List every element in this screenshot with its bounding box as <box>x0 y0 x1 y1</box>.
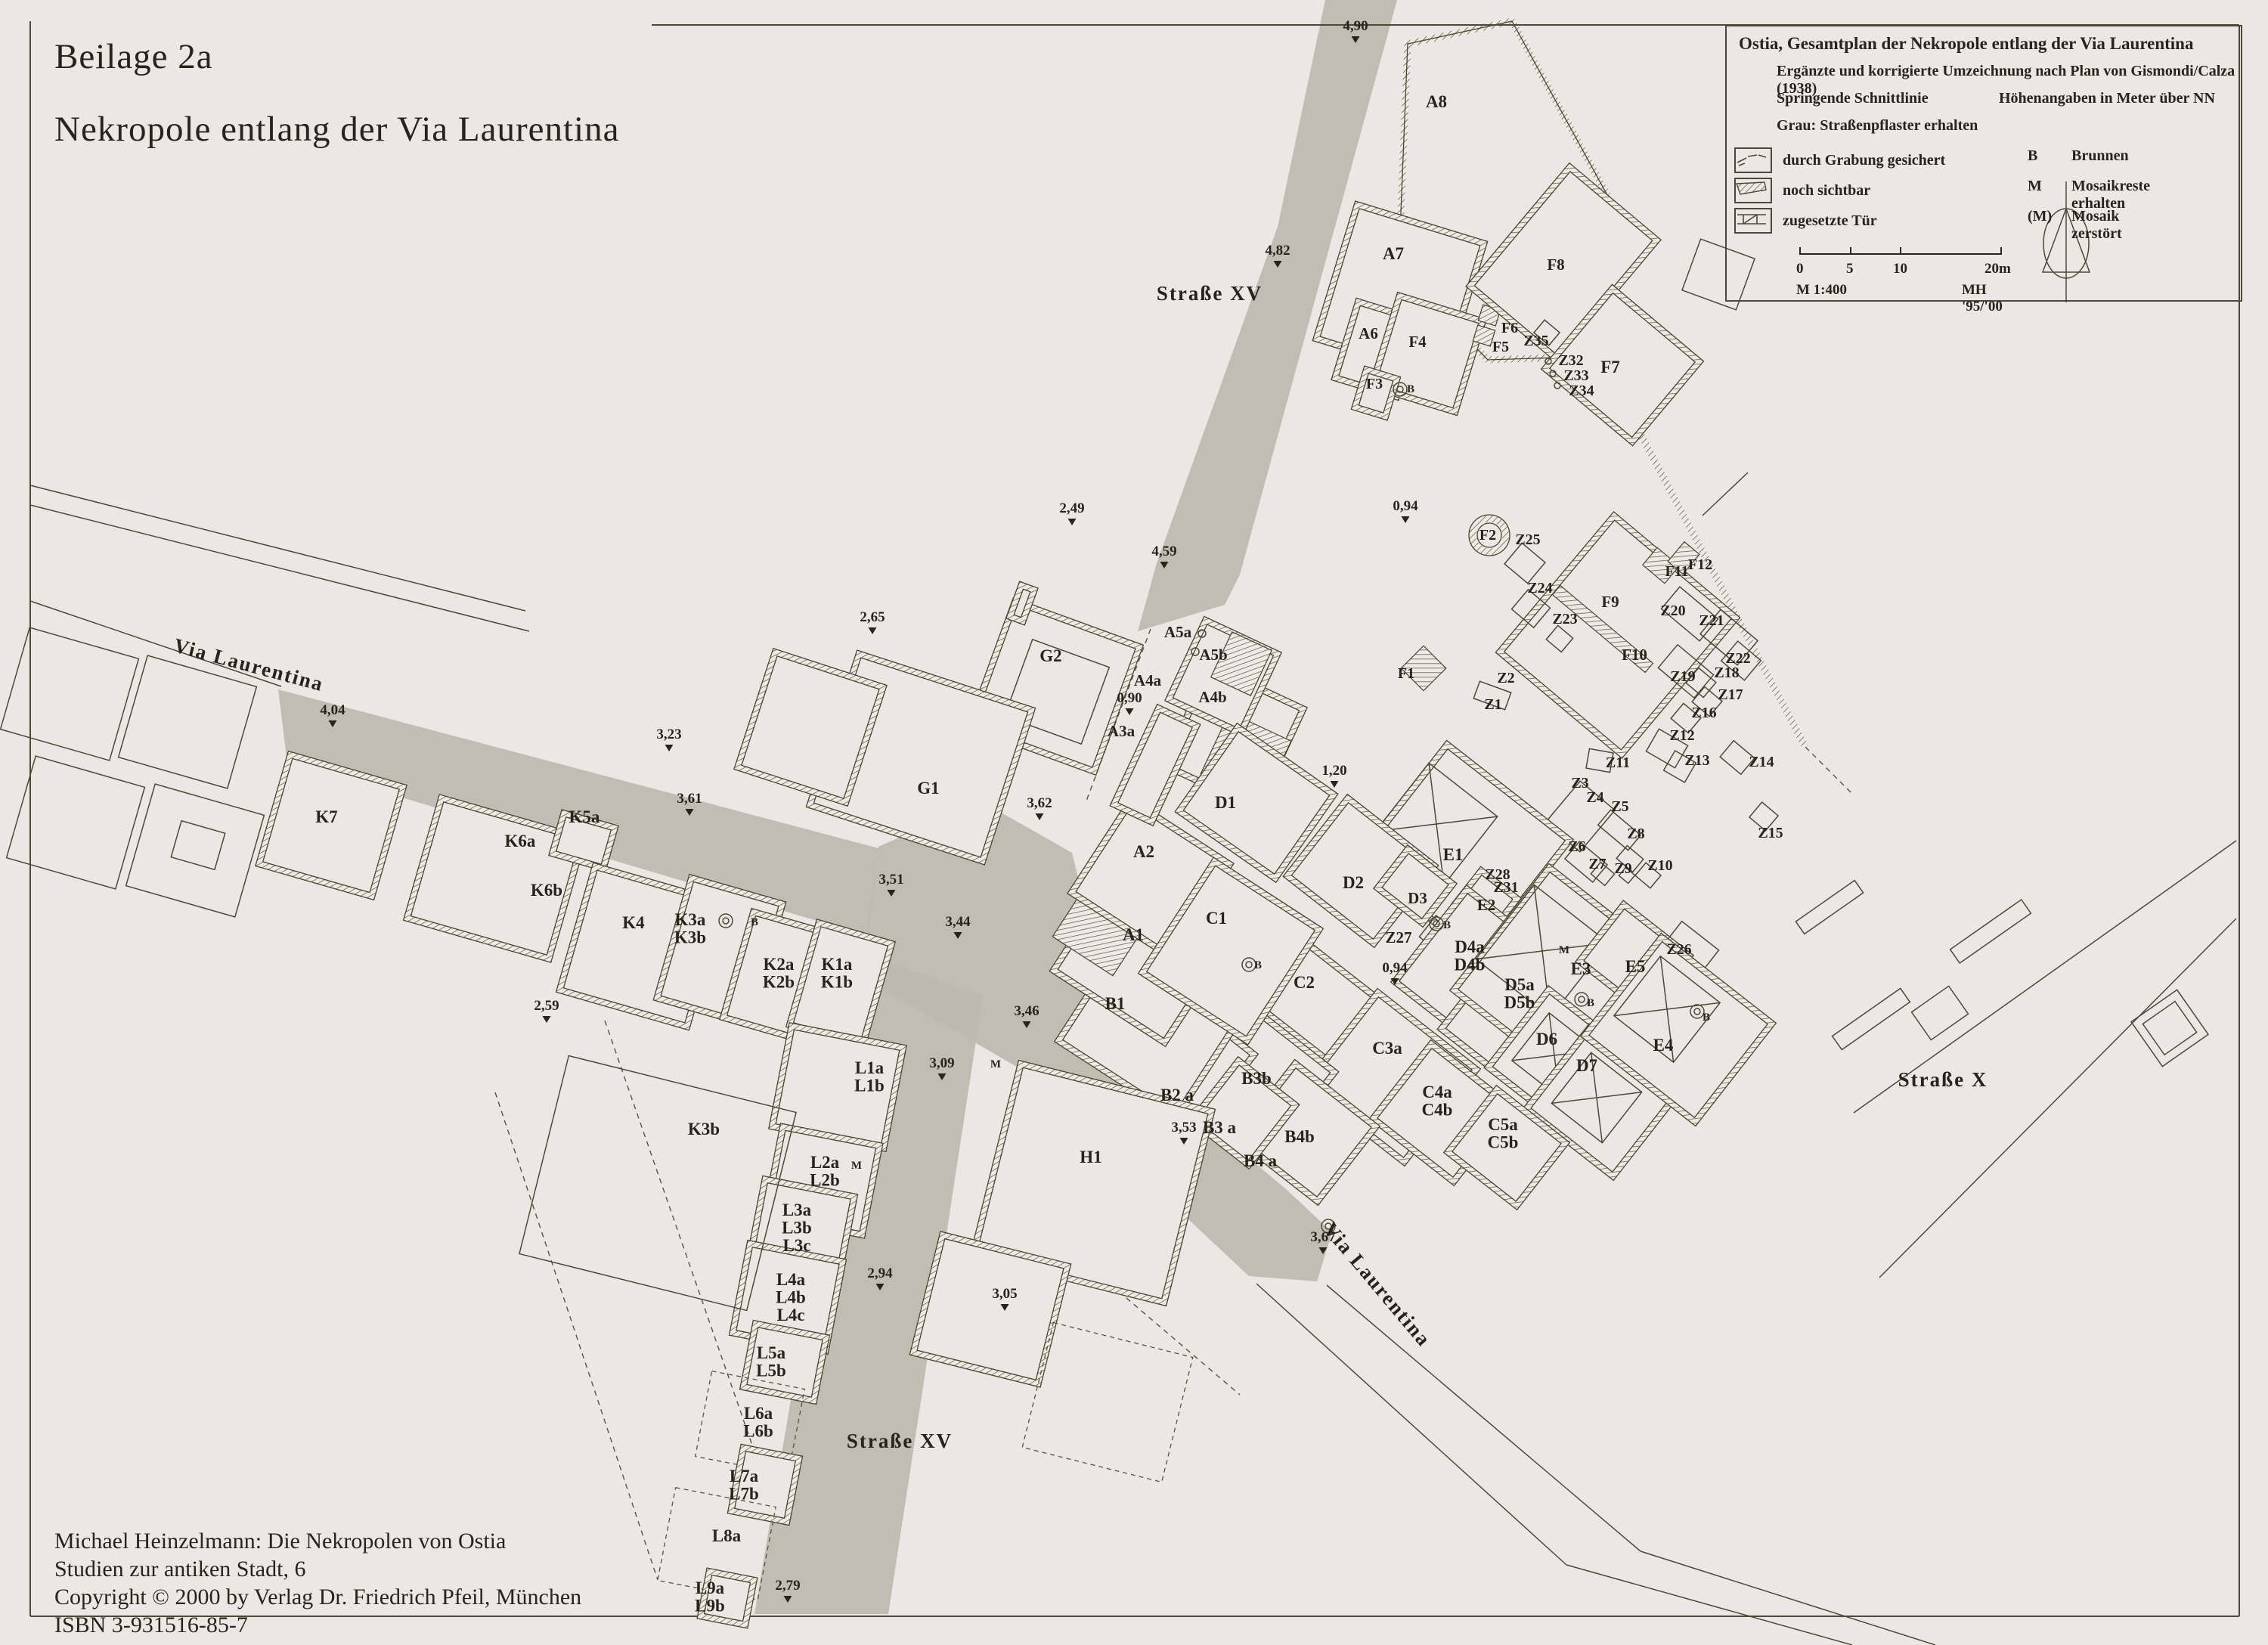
imprint-line: Copyright © 2000 by Verlag Dr. Friedrich… <box>54 1583 581 1611</box>
building-label: F3 <box>1366 376 1383 392</box>
building-label: Z34 <box>1569 383 1594 399</box>
building-label: F5 <box>1492 339 1509 355</box>
building-label: G2 <box>1039 646 1061 665</box>
building-label: D3 <box>1408 889 1427 907</box>
scale-tick <box>1900 247 1901 255</box>
road-line <box>30 485 525 611</box>
building-label: E5 <box>1625 957 1646 976</box>
building-label: B1 <box>1105 994 1126 1013</box>
building-label: Z31 <box>1493 879 1518 896</box>
elevation-value: 4,82 <box>1265 243 1290 259</box>
building-label: Z4 <box>1586 789 1603 806</box>
elevation-value: 2,94 <box>867 1266 893 1281</box>
building-label: D6 <box>1536 1030 1557 1049</box>
building-label: F7 <box>1600 358 1620 376</box>
building-label: Z6 <box>1568 838 1585 855</box>
elevation-value: 4,04 <box>320 702 345 718</box>
building <box>1022 1323 1192 1482</box>
elevation-value: 2,79 <box>775 1578 800 1594</box>
abbrev-key: M <box>2028 178 2067 195</box>
building-label: Z20 <box>1660 603 1685 619</box>
building-label: B <box>1443 919 1451 931</box>
abbrev-value: Mosaik zerstört <box>2071 208 2122 243</box>
building-label: K3aK3b <box>674 910 706 946</box>
building-label: Z5 <box>1611 798 1628 815</box>
building-label: C2 <box>1294 973 1315 992</box>
scale-tick <box>1799 247 1801 255</box>
abbrev-key: (M) <box>2028 208 2067 225</box>
building-label: B <box>1254 959 1262 971</box>
building-label: Z32 <box>1558 352 1583 369</box>
blocked-door-icon <box>1734 208 1772 234</box>
building-label: B <box>751 916 758 928</box>
building-label: A7 <box>1383 244 1404 263</box>
building-label: Z12 <box>1669 727 1694 744</box>
imprint-block: Michael Heinzelmann: Die Nekropolen von … <box>54 1527 581 1639</box>
building-label: Z17 <box>1718 686 1743 703</box>
legend-item-label: durch Grabung gesichert <box>1783 152 1945 169</box>
building-label: D2 <box>1343 873 1364 892</box>
building-label: F11 <box>1665 563 1688 580</box>
building-label: B3 a <box>1203 1118 1237 1137</box>
building-label: A6 <box>1359 324 1378 342</box>
building-label: Z24 <box>1527 580 1552 596</box>
building-label: A1 <box>1123 925 1144 944</box>
building-label: A5b <box>1199 646 1227 664</box>
building <box>1912 986 1969 1039</box>
building-label: B <box>1407 383 1414 395</box>
abbrev-key: B <box>2028 147 2067 165</box>
elevation-value: 4,90 <box>1343 18 1368 34</box>
elevation-value: 3,09 <box>929 1055 954 1071</box>
building-label: Z14 <box>1749 754 1774 770</box>
building-label: K6b <box>531 881 562 900</box>
scale-label: 0 <box>1796 261 1804 277</box>
building-label: H1 <box>1080 1148 1101 1166</box>
building-label: M <box>851 1160 862 1172</box>
legend-item-label: noch sichtbar <box>1783 182 1870 200</box>
elevation-value: 0,94 <box>1382 960 1408 976</box>
building-label: A4a <box>1134 671 1162 689</box>
building-label: A3a <box>1108 722 1136 740</box>
elevation-value: 3,53 <box>1171 1120 1196 1135</box>
building-label: E2 <box>1477 896 1496 914</box>
building-label: F4 <box>1408 333 1427 351</box>
scale-tick <box>1850 247 1851 255</box>
scale-author-date: MH '95/'00 <box>1962 282 2003 315</box>
elevation-value: 4,59 <box>1151 544 1176 559</box>
building-label: M <box>990 1058 1001 1070</box>
building-label: M <box>1559 944 1569 956</box>
excavated-wall-icon <box>1734 147 1772 173</box>
building-label: F2 <box>1479 527 1496 544</box>
building-label: Z9 <box>1614 860 1631 877</box>
building-label: L6aL6b <box>743 1404 773 1440</box>
elevation-value: 3,51 <box>878 872 903 888</box>
building <box>1504 543 1545 583</box>
building-wall <box>1 627 139 761</box>
building-label: Z25 <box>1515 531 1540 548</box>
building-label: K3b <box>688 1120 720 1138</box>
street-name-label: Straße X <box>1898 1068 1988 1091</box>
legend-item-excavated: durch Grabung gesichert B Brunnen <box>1734 147 1945 173</box>
building-label: A8 <box>1426 92 1447 111</box>
building <box>1950 900 2031 963</box>
building-label: Z21 <box>1699 612 1724 629</box>
building-label: Z10 <box>1647 857 1672 874</box>
building-label: F6 <box>1501 320 1518 336</box>
elevation-value: 3,44 <box>945 914 971 930</box>
building-label: B <box>1703 1011 1710 1024</box>
elevation-value: 2,59 <box>534 998 559 1014</box>
scale-tick <box>2000 247 2002 255</box>
building-label: Z8 <box>1627 826 1644 842</box>
street-name-label: Straße XV <box>1157 282 1263 305</box>
building-label: Z11 <box>1606 754 1630 771</box>
building-wall <box>2131 990 2208 1066</box>
elevation-value: 3,62 <box>1027 795 1052 811</box>
building-label: C1 <box>1206 909 1227 928</box>
building <box>119 655 257 788</box>
elevation-marker <box>1331 781 1339 788</box>
building-label: Z18 <box>1714 665 1739 681</box>
building-label: K5a <box>569 807 600 826</box>
imprint-line: ISBN 3-931516-85-7 <box>54 1611 581 1639</box>
building-label: K2aK2b <box>763 955 795 991</box>
building-label: L2aL2b <box>810 1153 840 1189</box>
building-wall <box>1912 986 1969 1039</box>
building-label: K6a <box>505 832 536 850</box>
building-label: D1 <box>1215 793 1236 812</box>
building <box>2143 1002 2196 1055</box>
legend-item-visible: noch sichtbar M Mosaikreste erhalten <box>1734 178 1870 203</box>
building-label: A5a <box>1164 623 1192 641</box>
building <box>1795 881 1863 934</box>
building-wall <box>1022 1323 1192 1482</box>
building-label: F8 <box>1547 256 1564 274</box>
building-label: K7 <box>315 807 337 826</box>
map-dot <box>1554 383 1560 389</box>
building <box>1833 988 1910 1049</box>
elevation-value: 0,94 <box>1393 498 1418 514</box>
elevation-value: 2,65 <box>860 609 885 625</box>
building-label: A2 <box>1133 842 1154 861</box>
building-wall <box>1795 881 1863 934</box>
title-block: Beilage 2a Nekropole entlang der Via Lau… <box>54 36 619 150</box>
building-wall <box>1950 900 2031 963</box>
scale-label: 10 <box>1893 261 1907 277</box>
map-plate-page: 4,904,822,494,592,650,900,941,203,620,94… <box>0 0 2268 1645</box>
building <box>7 756 145 889</box>
building-label: Z23 <box>1552 611 1577 627</box>
building-label: Z27 <box>1385 928 1411 946</box>
page-title: Nekropole entlang der Via Laurentina <box>54 109 619 150</box>
building-label: L4aL4bL4c <box>776 1270 806 1324</box>
building-label: K1aK1b <box>821 955 853 991</box>
building-label: Z1 <box>1484 696 1501 713</box>
building-label: K4 <box>622 913 645 932</box>
legend-title: Ostia, Gesamtplan der Nekropole entlang … <box>1739 34 2193 54</box>
building-label: G1 <box>917 779 939 798</box>
building-label: Z2 <box>1497 670 1514 686</box>
road-line <box>30 505 529 631</box>
legend-item-label: zugesetzte Tür <box>1783 212 1877 230</box>
building-label: Z35 <box>1523 333 1548 349</box>
building-label: Z33 <box>1563 367 1588 384</box>
building-label: B4 a <box>1244 1151 1278 1170</box>
building-wall <box>1833 988 1910 1049</box>
building-label: B3b <box>1241 1069 1272 1088</box>
legend-item-blocked-door: zugesetzte Tür (M) Mosaik zerstört <box>1734 208 1877 234</box>
building-label: D7 <box>1576 1056 1597 1075</box>
elevation-value: 2,49 <box>1059 500 1084 516</box>
abbrev-value: Brunnen <box>2071 147 2129 165</box>
elevation-value: 1,20 <box>1321 763 1346 779</box>
building-label: Z13 <box>1684 752 1709 769</box>
building <box>1 627 139 761</box>
plate-number: Beilage 2a <box>54 36 619 77</box>
building <box>2131 990 2208 1066</box>
visible-wall-icon <box>1734 178 1772 203</box>
elevation-value: 3,46 <box>1014 1003 1039 1019</box>
street-name-label: Via Laurentina <box>172 634 327 695</box>
building-label: B2 a <box>1160 1086 1194 1104</box>
building-label: L9aL9b <box>695 1578 725 1615</box>
building-label: E4 <box>1653 1036 1674 1055</box>
building-label: F9 <box>1601 593 1619 611</box>
street-name-label: Straße XV <box>847 1430 953 1452</box>
elevation-value: 3,23 <box>656 726 681 742</box>
building-label: F12 <box>1688 556 1712 573</box>
elevation-marker <box>1126 708 1134 715</box>
building-label: E1 <box>1443 845 1464 864</box>
imprint-line: Studien zur antiken Stadt, 6 <box>54 1555 581 1583</box>
building-label: E3 <box>1571 959 1591 978</box>
building-label: D5aD5b <box>1504 975 1535 1011</box>
elevation-marker <box>1068 519 1077 525</box>
building-label: D4aD4b <box>1455 937 1486 974</box>
scale-label: 5 <box>1846 261 1854 277</box>
elevation-marker <box>543 1016 551 1023</box>
legend-box: Ostia, Gesamtplan der Nekropole entlang … <box>1725 25 2242 302</box>
building <box>126 784 265 917</box>
building-label: F1 <box>1398 665 1414 682</box>
building-wall <box>119 655 257 788</box>
elevation-value: 3,61 <box>677 791 702 807</box>
imprint-line: Michael Heinzelmann: Die Nekropolen von … <box>54 1527 581 1555</box>
building-label: Z16 <box>1691 705 1716 721</box>
elevation-value: 0,90 <box>1117 690 1142 706</box>
building-wall <box>1504 543 1545 583</box>
building-label: A4b <box>1198 688 1226 706</box>
scale-ratio: M 1:400 <box>1796 282 1847 299</box>
dashed-line <box>605 1021 764 1478</box>
building-label: C4aC4b <box>1422 1083 1453 1119</box>
legend-note-gray: Grau: Straßenpflaster erhalten <box>1777 117 1978 135</box>
road-line <box>1327 1285 1641 1551</box>
building-wall <box>126 784 265 917</box>
building-wall <box>2143 1002 2196 1055</box>
building-label: Z26 <box>1666 941 1691 958</box>
dashed-line <box>1111 1285 1240 1395</box>
building-label: Z7 <box>1588 856 1606 872</box>
building-label: Z15 <box>1758 825 1783 841</box>
building <box>171 821 225 870</box>
building-label: F10 <box>1622 646 1647 664</box>
dashed-line <box>495 1092 658 1580</box>
building-wall <box>7 756 145 889</box>
elevation-value: 3,05 <box>992 1286 1017 1302</box>
building-wall <box>171 821 225 870</box>
building-label: L1aL1b <box>854 1058 885 1095</box>
legend-note-sectionline: Springende Schnittlinie <box>1777 90 1929 107</box>
building-label: L7aL7b <box>729 1467 759 1503</box>
building-label: L3aL3bL3c <box>782 1200 812 1255</box>
street-name-label: Via Laurentina <box>1319 1218 1436 1351</box>
building-label: L8a <box>712 1526 742 1545</box>
building-label: B4b <box>1284 1127 1315 1146</box>
building-label: L5aL5b <box>756 1343 786 1380</box>
elevation-marker <box>1036 813 1044 820</box>
building-label: C3a <box>1372 1039 1402 1058</box>
building-label: C5aC5b <box>1488 1115 1519 1151</box>
elevation-marker <box>665 745 674 751</box>
building-label: B <box>1587 997 1594 1009</box>
road-line <box>1703 472 1748 516</box>
elevation-marker <box>869 627 877 634</box>
dashed-line <box>1805 747 1851 792</box>
building-label: Z19 <box>1670 668 1695 685</box>
legend-note-heights: Höhenangaben in Meter über NN <box>1999 90 2215 107</box>
elevation-marker <box>1402 516 1410 523</box>
scale-label: 20m <box>1984 261 2011 277</box>
road-line <box>1879 919 2236 1278</box>
